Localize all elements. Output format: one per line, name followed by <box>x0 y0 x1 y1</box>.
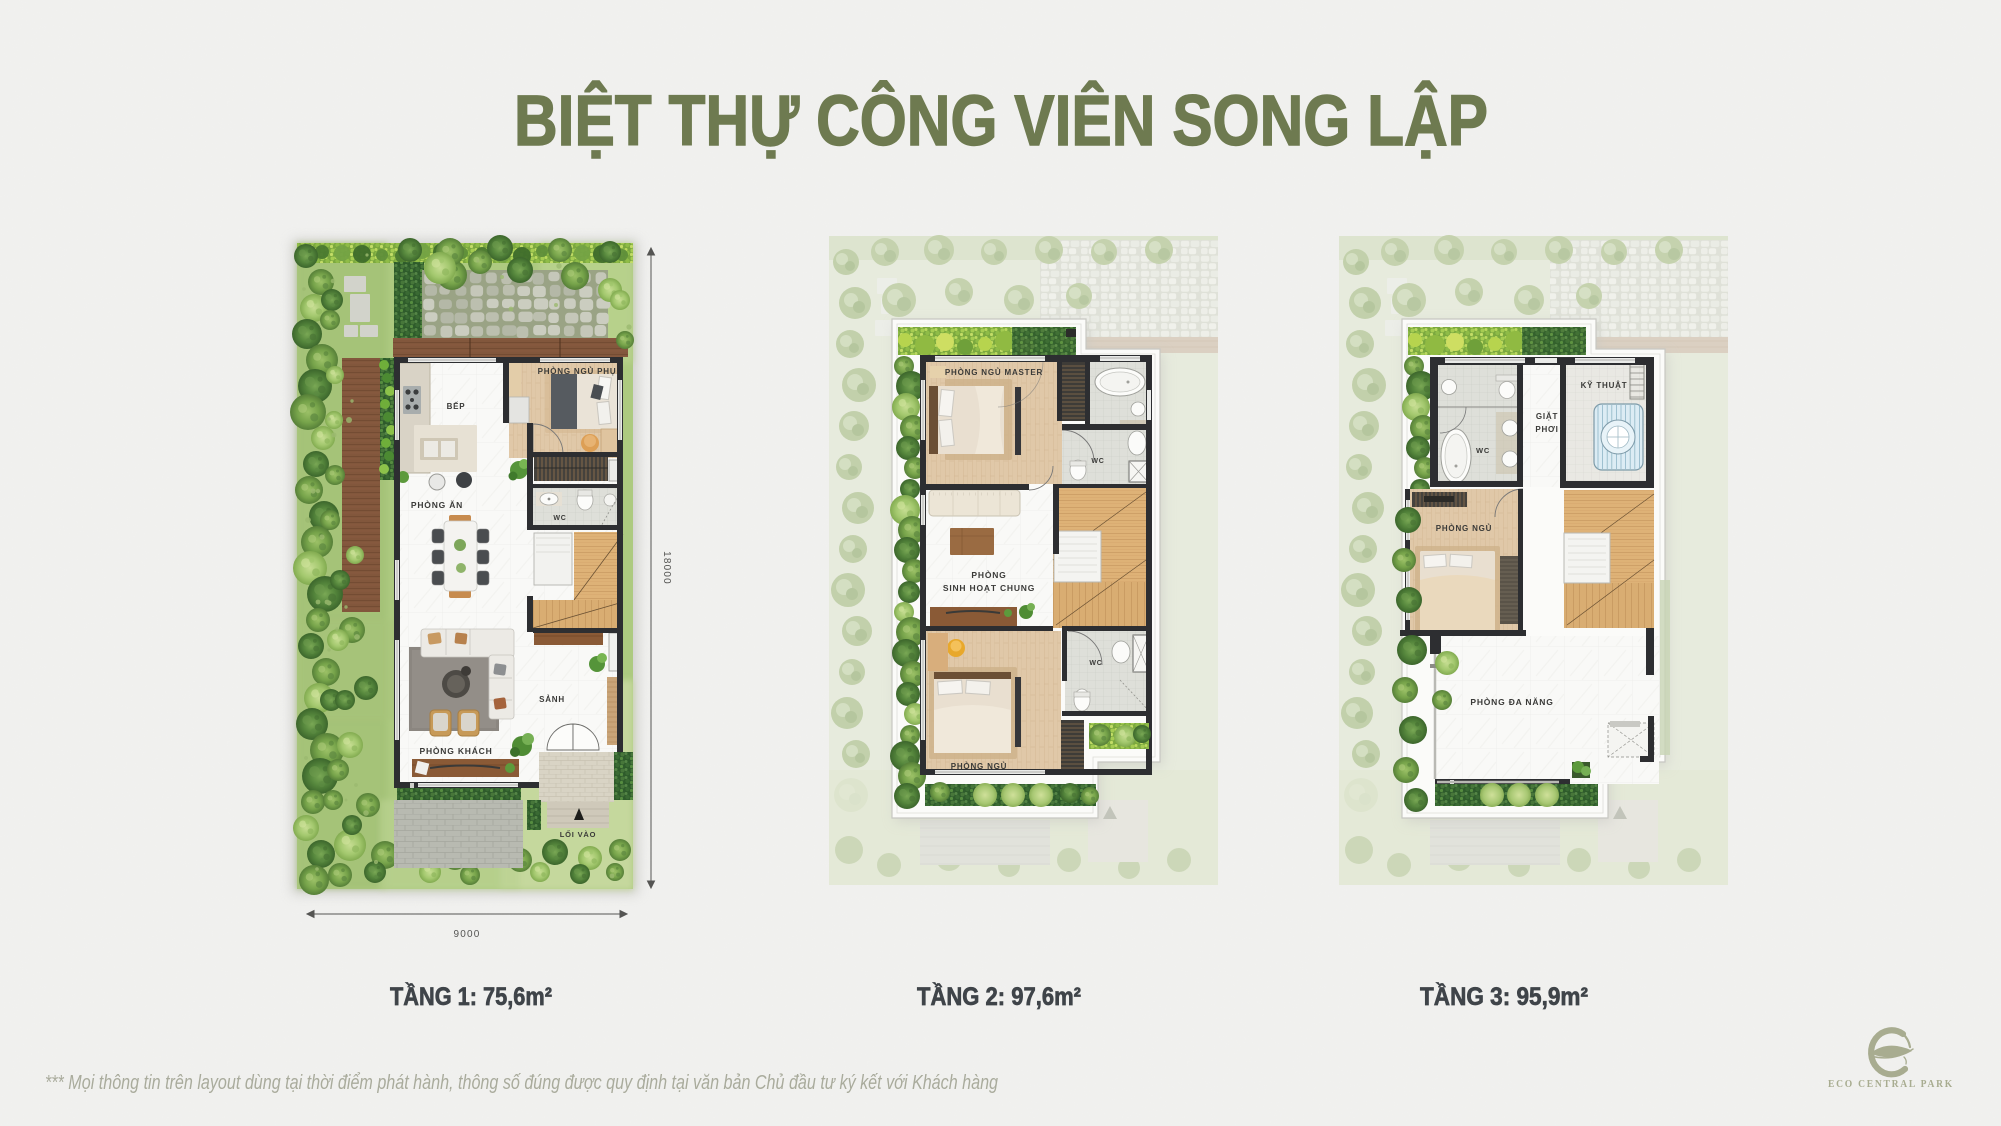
svg-text:KỸ THUẬT: KỸ THUẬT <box>1581 381 1628 390</box>
svg-text:LỐI VÀO: LỐI VÀO <box>560 829 596 839</box>
svg-text:WC: WC <box>1091 458 1104 465</box>
svg-text:WC: WC <box>1089 660 1102 667</box>
svg-text:WC: WC <box>553 515 566 522</box>
svg-text:ECO CENTRAL PARK: ECO CENTRAL PARK <box>1828 1078 1954 1090</box>
svg-text:PHÒNG NGỦ: PHÒNG NGỦ <box>1436 524 1493 533</box>
svg-text:SINH HOẠT CHUNG: SINH HOẠT CHUNG <box>943 583 1035 593</box>
svg-text:PHÒNG ĐA NĂNG: PHÒNG ĐA NĂNG <box>1470 696 1553 707</box>
svg-text:TẦNG 2: 97,6m²: TẦNG 2: 97,6m² <box>917 982 1081 1011</box>
svg-text:PHÒNG NGỦ MASTER: PHÒNG NGỦ MASTER <box>945 368 1043 377</box>
svg-text:PHÒNG: PHÒNG <box>971 569 1006 580</box>
svg-text:GIẶT: GIẶT <box>1536 412 1558 421</box>
svg-text:PHÒNG NGỦ: PHÒNG NGỦ <box>951 762 1008 771</box>
svg-text:BIỆT THỰ CÔNG VIÊN SONG LẬP: BIỆT THỰ CÔNG VIÊN SONG LẬP <box>514 81 1488 161</box>
svg-text:TẦNG 1: 75,6m²: TẦNG 1: 75,6m² <box>390 982 552 1011</box>
svg-text:SẢNH: SẢNH <box>539 695 565 704</box>
svg-text:WC: WC <box>1476 446 1490 455</box>
svg-text:PHÒNG KHÁCH: PHÒNG KHÁCH <box>419 745 492 756</box>
svg-text:9000: 9000 <box>453 929 480 940</box>
svg-text:BẾP: BẾP <box>447 401 466 411</box>
svg-text:TẦNG 3: 95,9m²: TẦNG 3: 95,9m² <box>1420 982 1588 1011</box>
svg-text:PHÒNG NGỦ PHỤ: PHÒNG NGỦ PHỤ <box>538 367 617 376</box>
svg-text:PHÒNG ĂN: PHÒNG ĂN <box>411 499 463 510</box>
svg-text:PHƠI: PHƠI <box>1535 425 1558 434</box>
svg-text:*** Mọi thông tin trên layout: *** Mọi thông tin trên layout dùng tại t… <box>45 1071 998 1094</box>
svg-text:18000: 18000 <box>661 551 672 585</box>
